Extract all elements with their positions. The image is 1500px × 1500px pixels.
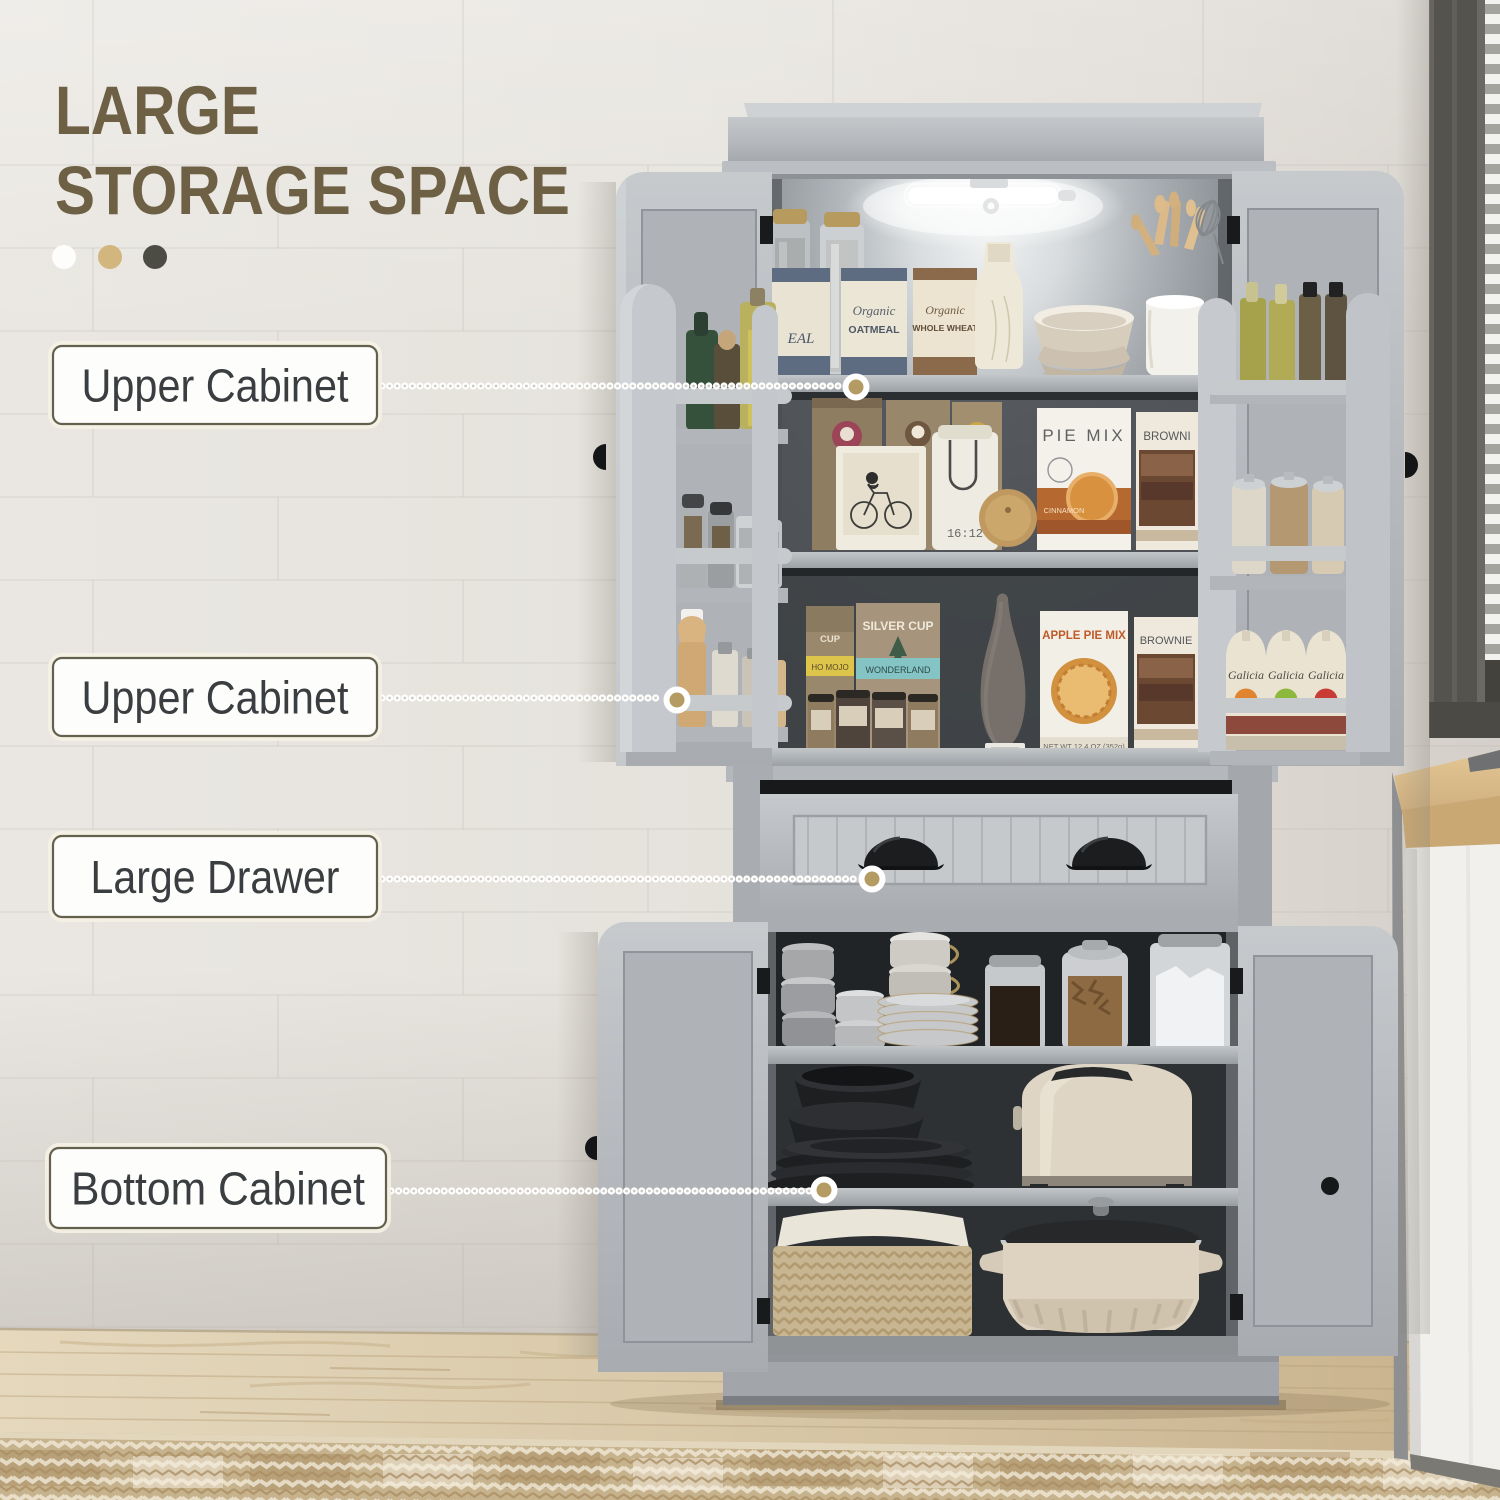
svg-text:Upper Cabinet: Upper Cabinet (82, 360, 349, 412)
svg-text:Upper Cabinet: Upper Cabinet (82, 672, 349, 724)
svg-text:CUP: CUP (820, 634, 841, 645)
svg-text:Galicia: Galicia (1268, 668, 1304, 682)
svg-text:BROWNI: BROWNI (1143, 431, 1190, 443)
svg-text:OATMEAL: OATMEAL (848, 324, 900, 336)
svg-text:Bottom Cabinet: Bottom Cabinet (71, 1163, 365, 1215)
svg-text:SILVER CUP: SILVER CUP (862, 619, 933, 633)
svg-text:Galicia: Galicia (1308, 668, 1344, 682)
svg-text:HO MOJO: HO MOJO (811, 663, 848, 672)
svg-text:WONDERLAND: WONDERLAND (865, 665, 931, 675)
svg-text:Large Drawer: Large Drawer (91, 851, 340, 903)
svg-text:APPLE PIE MIX: APPLE PIE MIX (1042, 630, 1126, 642)
svg-text:LARGE: LARGE (55, 72, 260, 149)
svg-text:WHOLE WHEAT: WHOLE WHEAT (912, 323, 978, 333)
svg-text:Organic: Organic (853, 303, 896, 318)
svg-text:STORAGE SPACE: STORAGE SPACE (55, 152, 570, 229)
svg-text:BROWNIE: BROWNIE (1140, 635, 1193, 647)
svg-text:EAL: EAL (787, 331, 815, 347)
svg-text:PIE MIX: PIE MIX (1042, 426, 1125, 445)
svg-text:CINNAMON: CINNAMON (1044, 506, 1085, 515)
svg-text:Galicia: Galicia (1228, 668, 1264, 682)
svg-text:Organic: Organic (925, 303, 965, 317)
svg-text:16:12: 16:12 (947, 527, 983, 541)
